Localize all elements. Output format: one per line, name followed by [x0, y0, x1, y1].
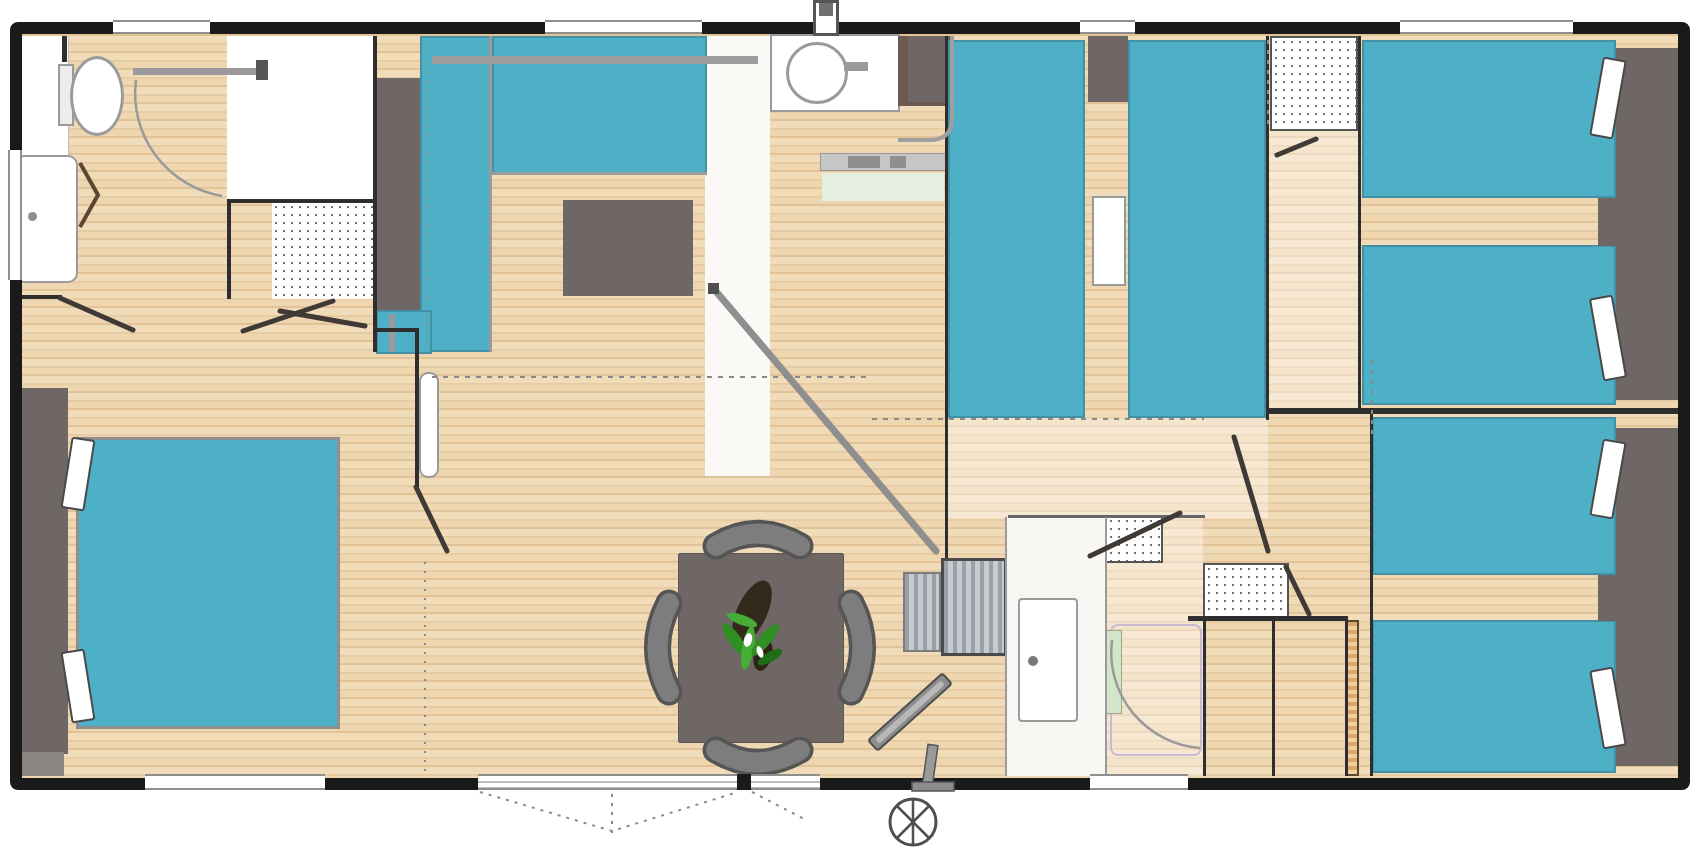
exterior-wall [10, 22, 1690, 790]
window [545, 20, 702, 34]
window [113, 20, 210, 34]
roof-vent-cap [819, 3, 833, 16]
window [1400, 20, 1573, 34]
window [1080, 20, 1135, 34]
jockey-wheel-icon [890, 799, 936, 845]
window [8, 150, 22, 280]
window [145, 774, 325, 790]
entrance-door-opening [1090, 774, 1188, 790]
floor-plan [0, 0, 1700, 857]
bay-mullion [737, 774, 751, 790]
sliding-bay-window [478, 774, 820, 790]
